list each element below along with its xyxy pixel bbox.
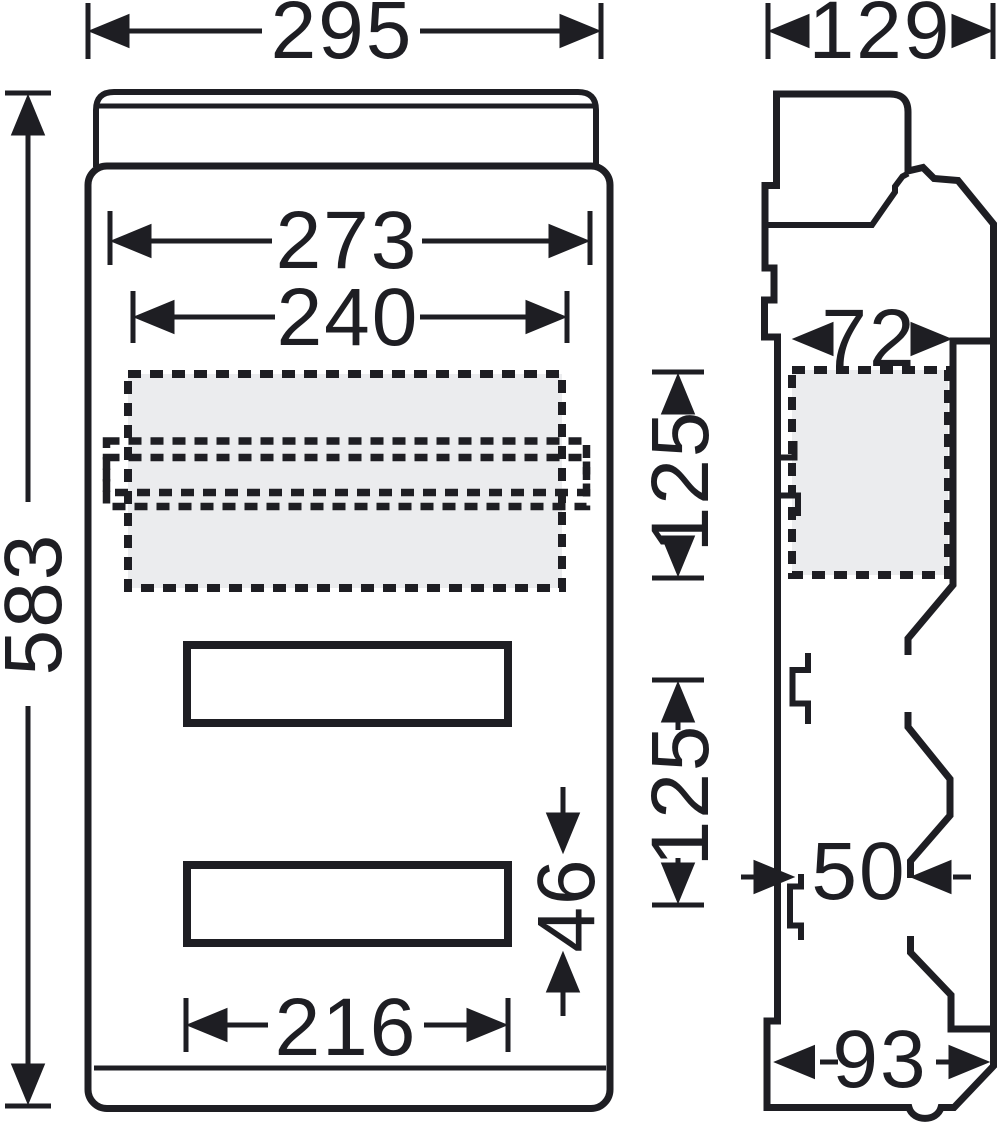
- svg-text:295: 295: [271, 0, 414, 76]
- svg-text:93: 93: [832, 1014, 927, 1105]
- svg-text:240: 240: [277, 272, 420, 363]
- svg-text:125: 125: [635, 410, 726, 553]
- svg-text:216: 216: [275, 982, 418, 1073]
- svg-text:72: 72: [821, 293, 916, 384]
- svg-text:583: 583: [0, 533, 79, 676]
- svg-text:125: 125: [635, 724, 726, 867]
- svg-text:50: 50: [811, 826, 906, 917]
- svg-text:129: 129: [809, 0, 952, 76]
- svg-text:46: 46: [521, 857, 612, 952]
